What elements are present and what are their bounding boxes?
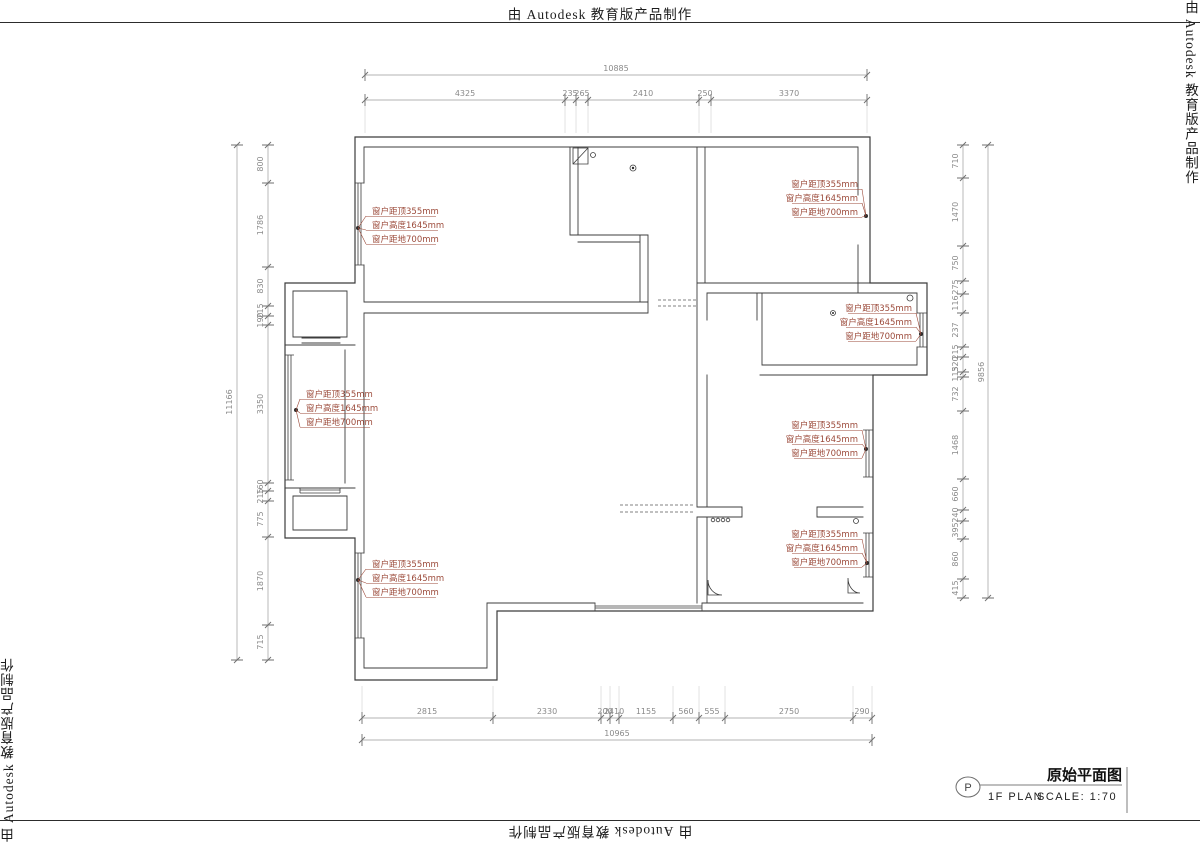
annotation-line: 窗户距地700mm [372, 234, 439, 245]
window-annotation: 窗户距顶355mm 窗户高度1645mm 窗户距地700mm [786, 179, 868, 218]
dim-right-seg: 750 [951, 255, 960, 270]
annotation-line: 窗户高度1645mm [840, 317, 912, 328]
plan-marker-letter: P [964, 782, 971, 794]
shower-tray-symbol [573, 148, 588, 164]
fixtures [573, 148, 913, 595]
dim-left-seg: 800 [256, 156, 265, 171]
column-arc-symbol [848, 578, 860, 593]
dim-right-seg: 710 [951, 153, 960, 168]
column-arc-symbol [708, 580, 722, 595]
window-annotation: 窗户距顶355mm 窗户高度1645mm 窗户距地700mm [840, 303, 923, 342]
dim-bottom-seg: 2410 [604, 707, 624, 716]
plan-label: 1F PLAN [988, 791, 1043, 803]
annotation-line: 窗户距顶355mm [845, 303, 912, 314]
dim-bottom-seg: 2815 [417, 707, 437, 716]
dim-bottom-seg: 560 [678, 707, 693, 716]
hinge-symbol [711, 518, 715, 522]
floor-plan-canvas: 10885 4325 235 265 2410 250 3370 10965 2… [0, 0, 1200, 842]
annotation-line: 窗户距地700mm [306, 417, 373, 428]
annotation-line: 窗户距地700mm [791, 557, 858, 568]
dim-right-seg: 1468 [951, 435, 960, 455]
corner-symbol [854, 519, 859, 524]
annotation-line: 窗户高度1645mm [306, 403, 378, 414]
dim-top-seg: 4325 [455, 89, 475, 98]
ceiling-symbol-dot [632, 167, 634, 169]
drawing-title: 原始平面图 [1047, 766, 1122, 784]
dim-right-seg: 860 [951, 551, 960, 566]
dim-left-seg: 1870 [256, 571, 265, 591]
annotation-line: 窗户距地700mm [791, 207, 858, 218]
annotation-line: 窗户高度1645mm [372, 220, 444, 231]
title-block: P 原始平面图 1F PLAN SCALE: 1:70 [956, 766, 1127, 813]
window-annotation: 窗户距顶355mm 窗户高度1645mm 窗户距地700mm [786, 420, 868, 459]
annotation-line: 窗户距地700mm [372, 587, 439, 598]
annotation-line: 窗户距顶355mm [791, 179, 858, 190]
walls [285, 137, 927, 680]
dim-right-seg: 237 [951, 322, 960, 337]
dim-bottom-seg: 290 [854, 707, 869, 716]
dim-right-seg: 660 [951, 486, 960, 501]
annotation-line: 窗户距顶355mm [306, 389, 373, 400]
hinge-symbol [716, 518, 720, 522]
dimension-ticks-right [957, 142, 994, 601]
annotation-line: 窗户距地700mm [791, 448, 858, 459]
annotation-line: 窗户距顶355mm [791, 529, 858, 540]
window-annotation: 窗户距顶355mm 窗户高度1645mm 窗户距地700mm [786, 529, 869, 568]
dim-right-seg: 115 [951, 366, 960, 381]
dim-bottom-total: 10965 [604, 729, 629, 738]
window-annotation: 窗户距顶355mm 窗户高度1645mm 窗户距地700mm [294, 389, 378, 428]
dim-bottom-seg: 2750 [779, 707, 799, 716]
dim-right-seg: 732 [951, 386, 960, 401]
window-annotation: 窗户距顶355mm 窗户高度1645mm 窗户距地700mm [356, 206, 444, 245]
window-annotation: 窗户距顶355mm 窗户高度1645mm 窗户距地700mm [356, 559, 444, 598]
drain-symbol [591, 153, 596, 158]
hinge-symbol [726, 518, 730, 522]
dim-left-seg: 1786 [256, 215, 265, 235]
dim-left-seg: 190 [256, 312, 265, 327]
cad-sheet: 由 Autodesk 教育版产品制作 由 Autodesk 教育版产品制作 由 … [0, 0, 1200, 842]
dim-left-total: 11166 [225, 389, 234, 414]
dim-left-seg: 775 [256, 511, 265, 526]
annotation-line: 窗户高度1645mm [786, 434, 858, 445]
dim-top-seg: 250 [697, 89, 712, 98]
corner-symbol [907, 295, 913, 301]
outer-wall-outline [285, 137, 927, 680]
dim-right-seg: 240 [951, 507, 960, 522]
dim-top-total: 10885 [603, 64, 628, 73]
dimension-ticks-top [362, 69, 870, 106]
hinge-symbol [721, 518, 725, 522]
dim-left-seg: 830 [256, 278, 265, 293]
annotation-line: 窗户距顶355mm [372, 206, 439, 217]
dim-top-seg: 3370 [779, 89, 799, 98]
dim-right-seg: 1470 [951, 202, 960, 222]
point-symbol-dot [832, 312, 834, 314]
annotation-line: 窗户高度1645mm [786, 543, 858, 554]
dim-top-seg: 2410 [633, 89, 653, 98]
dim-left-seg: 215 [256, 488, 265, 503]
dim-left-seg: 3350 [256, 394, 265, 414]
dim-bottom-seg: 1155 [636, 707, 656, 716]
annotation-line: 窗户距顶355mm [372, 559, 439, 570]
annotation-line: 窗户距顶355mm [791, 420, 858, 431]
dim-right-total: 9856 [977, 362, 986, 382]
dim-bottom-seg: 2330 [537, 707, 557, 716]
dim-top-seg: 265 [574, 89, 589, 98]
dim-right-seg: 415 [951, 580, 960, 595]
scale-label: SCALE: 1:70 [1037, 791, 1117, 803]
dim-bottom-seg: 555 [704, 707, 719, 716]
annotation-line: 窗户距地700mm [845, 331, 912, 342]
annotation-line: 窗户高度1645mm [786, 193, 858, 204]
annotation-line: 窗户高度1645mm [372, 573, 444, 584]
dimension-ticks-left [231, 142, 274, 663]
opening-dashed-lines [620, 300, 697, 512]
dim-right-seg: 116 [951, 295, 960, 310]
dim-right-seg: 395 [951, 522, 960, 537]
dim-right-seg: 275 [951, 279, 960, 294]
dim-left-seg: 715 [256, 634, 265, 649]
